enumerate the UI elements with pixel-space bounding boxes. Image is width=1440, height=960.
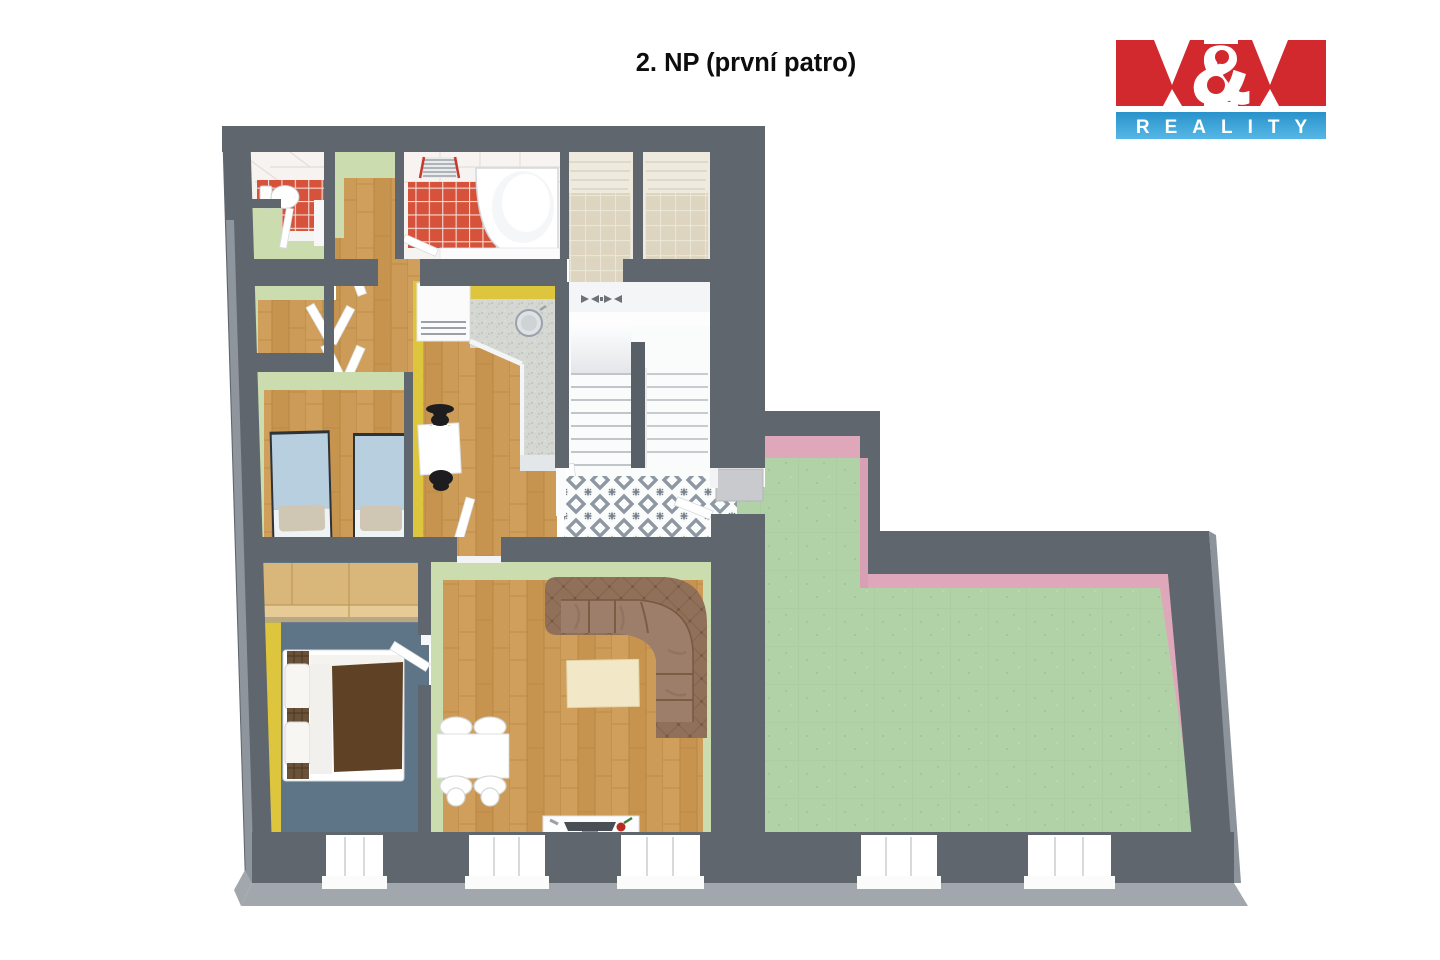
svg-text:REALITY: REALITY <box>1136 117 1322 138</box>
svg-text:2. NP (první patro): 2. NP (první patro) <box>636 49 857 77</box>
svg-text:&: & <box>1192 30 1249 119</box>
